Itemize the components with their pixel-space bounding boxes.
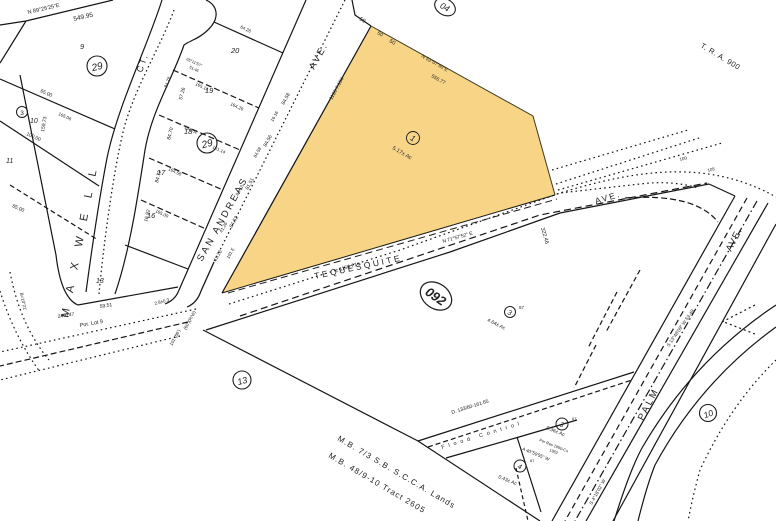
svg-text:10: 10 (30, 118, 38, 125)
svg-text:67: 67 (519, 305, 525, 310)
svg-text:20: 20 (230, 46, 240, 55)
svg-text:3: 3 (20, 110, 24, 117)
svg-text:13: 13 (96, 278, 104, 285)
svg-text:67: 67 (530, 458, 535, 463)
svg-text:11: 11 (6, 158, 13, 165)
svg-text:67: 67 (572, 416, 577, 421)
